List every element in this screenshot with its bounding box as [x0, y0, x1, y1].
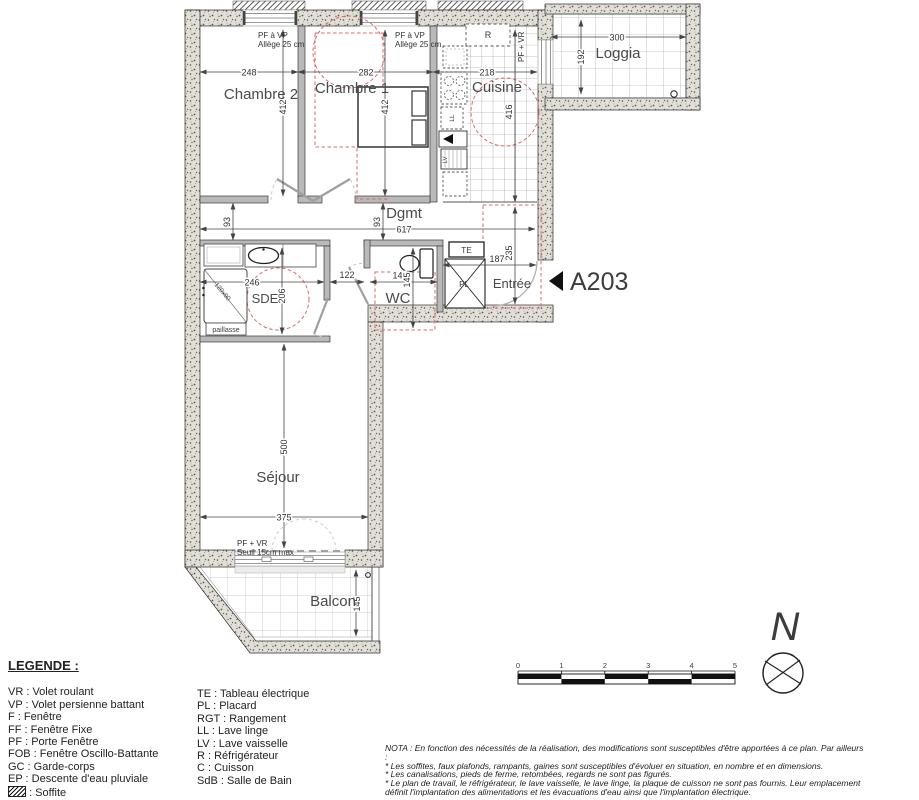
floor-plan-sheet: TE PL 120x90 paillasse R: [0, 0, 919, 800]
washing-machine: LL: [441, 107, 463, 129]
svg-text:paillasse: paillasse: [212, 327, 239, 334]
svg-text:1: 1: [559, 661, 563, 670]
door-chambre1: [313, 179, 356, 201]
nota-line: NOTA : En fonction des nécessités de la …: [385, 744, 913, 753]
soffite-band: [233, 1, 305, 10]
svg-text:93: 93: [222, 217, 232, 227]
opening-label: PF à VP: [258, 31, 288, 40]
opening-label: Allège 25 cm: [258, 40, 305, 49]
legend-item: VP : Volet persienne battant: [8, 699, 158, 711]
sink-unit: [439, 131, 467, 147]
door-sde: [314, 298, 328, 337]
room-label-wc: WC: [386, 290, 411, 307]
legend-item: TE : Tableau électrique: [197, 688, 309, 700]
room-label-sde: SDE: [252, 291, 279, 306]
partition: [298, 26, 305, 198]
legend-item: LL : Lave linge: [197, 725, 309, 737]
room-label-chambre2: Chambre 2: [224, 86, 298, 103]
svg-text:412: 412: [380, 99, 390, 114]
room-label-loggia: Loggia: [595, 45, 641, 62]
svg-text:375: 375: [276, 513, 291, 523]
paillasse: paillasse: [206, 323, 246, 335]
north-compass: N: [763, 605, 803, 693]
nota-block: NOTA : En fonction des nécessités de la …: [385, 744, 913, 797]
sde-counter: [204, 244, 243, 266]
svg-text:PL: PL: [459, 280, 469, 289]
legend-item: PF : Porte Fenêtre: [8, 736, 158, 748]
svg-text:416: 416: [504, 104, 514, 119]
kitchen-tile-floor: [467, 26, 537, 202]
window-kitchen-loggia: [538, 40, 553, 84]
unit-marker: A203: [549, 268, 628, 296]
opening-label: Seuil 15cm max: [237, 548, 294, 557]
partition: [200, 196, 268, 203]
legend-item-label: : Soffite: [29, 787, 66, 799]
scale-bar: 0 1 2 3 4 5: [516, 661, 737, 684]
unit-number: A203: [570, 268, 628, 296]
legend-item: R : Réfrigérateur: [197, 750, 309, 762]
svg-text:2: 2: [603, 661, 607, 670]
worktop-box: [443, 46, 467, 68]
opening-label: Allège 25 cm: [395, 40, 442, 49]
soffite-band: [438, 1, 523, 10]
room-label-chambre1: Chambre 1: [315, 80, 389, 97]
opening-label: PF à VP: [395, 31, 425, 40]
legend-column-2: TE : Tableau électrique PL : Placard RGT…: [197, 688, 309, 787]
opening-label: PF + VR: [517, 31, 526, 62]
legend-item: FOB : Fenêtre Oscillo-Battante: [8, 748, 158, 760]
legend-item: RGT : Rangement: [197, 713, 309, 725]
entrance-arrow-icon: [549, 271, 563, 291]
room-label-dgmt: Dgmt: [386, 205, 423, 222]
wall-left: [185, 10, 200, 567]
sde-vanity: [245, 244, 316, 267]
svg-text:LV: LV: [443, 157, 449, 164]
legend-item: GC : Garde-corps: [8, 761, 158, 773]
legend-item: VR : Volet roulant: [8, 686, 158, 698]
svg-text:4: 4: [690, 661, 694, 670]
svg-text:617: 617: [396, 225, 411, 235]
soffite-band: [352, 1, 426, 10]
svg-text:93: 93: [372, 217, 382, 227]
partition-wc-left: [364, 240, 370, 268]
svg-text:246: 246: [244, 278, 259, 288]
svg-text:282: 282: [358, 68, 373, 78]
room-label-sejour: Séjour: [256, 469, 299, 486]
cabinet-box: [443, 172, 467, 196]
window-chambre2: [243, 10, 297, 26]
wall: [418, 10, 545, 26]
wall: [297, 10, 360, 26]
partition-wc-top: [364, 240, 443, 246]
opening-label: PF + VR: [237, 539, 268, 548]
svg-text:500: 500: [279, 439, 289, 454]
svg-text:235: 235: [504, 245, 514, 260]
te-box: TE: [449, 242, 484, 257]
wall-right: [538, 84, 553, 260]
wall-sejour-bottom: [185, 550, 235, 567]
svg-text:145: 145: [402, 272, 412, 287]
wall-loggia-bottom: [545, 98, 700, 110]
partition: [430, 26, 437, 202]
wall-loggia-right: [686, 4, 700, 110]
partition-placard: [437, 246, 443, 312]
svg-text:5: 5: [733, 661, 737, 670]
svg-text:192: 192: [576, 49, 586, 64]
legend-title: LEGENDE :: [8, 660, 158, 672]
accessibility-circle-chambre1: [313, 16, 385, 88]
svg-text:187: 187: [489, 254, 504, 264]
legend-item: SdB : Salle de Bain: [197, 775, 309, 787]
shower: 120x90: [202, 269, 247, 323]
legend-item: EP : Descente d'eau pluviale: [8, 773, 158, 785]
fridge-label: R: [485, 30, 492, 40]
svg-text:3: 3: [646, 661, 650, 670]
svg-text:300: 300: [609, 33, 624, 43]
hob: [441, 72, 467, 104]
window-chambre1: [360, 10, 418, 26]
svg-text:LL: LL: [449, 114, 456, 122]
wall-sejour-bottom: [345, 550, 383, 567]
nota-line: définit l'implantation des alimentations…: [385, 788, 913, 797]
wall-sejour-right: [368, 322, 383, 567]
legend-item-soffite: : Soffite: [8, 786, 158, 799]
north-label: N: [771, 605, 800, 649]
legend-item: C : Cuisson: [197, 762, 309, 774]
room-label-entree: Entrée: [493, 276, 531, 291]
wall-loggia-top: [545, 4, 700, 14]
svg-text:122: 122: [339, 270, 354, 280]
legend: LEGENDE : VR : Volet roulant VP : Volet …: [8, 660, 158, 799]
svg-text:218: 218: [479, 68, 494, 78]
legend-item: LV : Lave vaisselle: [197, 738, 309, 750]
svg-text:206: 206: [277, 288, 287, 303]
legend-item: FF : Fenêtre Fixe: [8, 724, 158, 736]
soffite-hatch-icon: [8, 786, 26, 797]
wall-right: [538, 10, 553, 40]
partition-sde-right: [324, 246, 330, 300]
room-label-balcon: Balcon: [310, 593, 356, 610]
svg-text:248: 248: [241, 68, 256, 78]
partition-sde-bottom: [200, 336, 330, 342]
svg-text:0: 0: [516, 661, 520, 670]
legend-item: PL : Placard: [197, 700, 309, 712]
legend-item: F : Fenêtre: [8, 711, 158, 723]
placard: PL: [445, 259, 485, 308]
dishwasher: LV: [441, 149, 467, 169]
room-label-cuisine: Cuisine: [472, 79, 522, 96]
svg-text:TE: TE: [461, 245, 472, 255]
door-chambre2: [271, 179, 313, 201]
